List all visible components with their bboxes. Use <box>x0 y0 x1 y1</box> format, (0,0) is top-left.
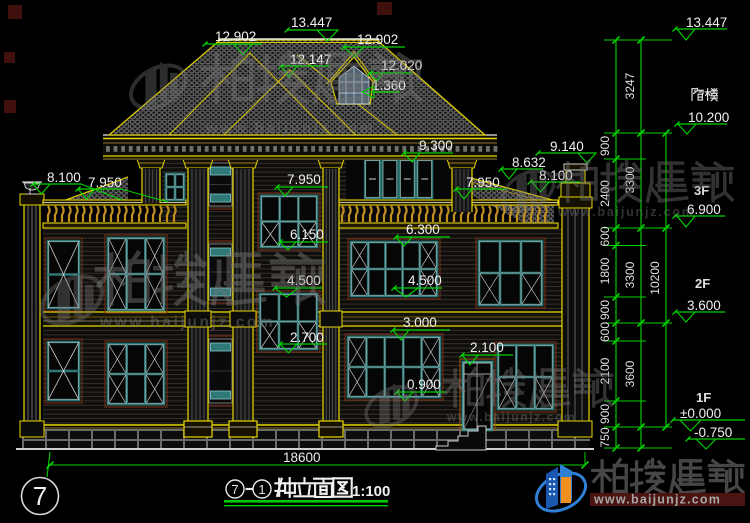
svg-text:6.150: 6.150 <box>290 227 324 242</box>
svg-text:3300: 3300 <box>623 261 637 288</box>
svg-text:www.baijunjz.com: www.baijunjz.com <box>205 120 375 137</box>
svg-text:12.902: 12.902 <box>215 29 256 44</box>
svg-text:-0.750: -0.750 <box>694 425 732 440</box>
svg-text:3.000: 3.000 <box>403 315 437 330</box>
svg-text:13.447: 13.447 <box>291 15 332 30</box>
svg-text:4.500: 4.500 <box>408 273 442 288</box>
svg-text:1:100: 1:100 <box>352 483 390 500</box>
svg-text:1: 1 <box>258 482 265 497</box>
svg-text:13.447: 13.447 <box>686 15 727 30</box>
svg-text:2.700: 2.700 <box>290 330 324 345</box>
svg-text:600: 600 <box>598 226 612 246</box>
svg-text:1F: 1F <box>696 390 711 405</box>
svg-text:www.baijunjz.com: www.baijunjz.com <box>99 314 275 331</box>
svg-text:12.902: 12.902 <box>357 32 398 47</box>
svg-text:7.950: 7.950 <box>287 172 321 187</box>
svg-text:600: 600 <box>598 322 612 342</box>
svg-text:750: 750 <box>598 427 612 447</box>
svg-text:7: 7 <box>231 482 238 497</box>
svg-text:7: 7 <box>33 481 47 511</box>
svg-text:2F: 2F <box>695 276 710 291</box>
svg-text:±0.000: ±0.000 <box>680 406 721 421</box>
svg-text:7.950: 7.950 <box>466 175 500 190</box>
svg-text:3247: 3247 <box>623 72 637 99</box>
svg-text:10200: 10200 <box>648 261 662 295</box>
svg-text:900: 900 <box>598 404 612 424</box>
svg-text:www.baijunjz.com: www.baijunjz.com <box>593 493 721 507</box>
svg-text:3600: 3600 <box>623 360 637 387</box>
svg-text:7.950: 7.950 <box>88 175 122 190</box>
svg-text:9.140: 9.140 <box>550 139 584 154</box>
svg-text:900: 900 <box>598 136 612 156</box>
svg-text:9.300: 9.300 <box>419 138 453 153</box>
svg-text:10.200: 10.200 <box>688 110 729 125</box>
svg-text:8.100: 8.100 <box>47 170 81 185</box>
svg-text:www.baijunjz.com: www.baijunjz.com <box>446 410 576 424</box>
svg-text:2400: 2400 <box>598 180 612 207</box>
svg-text:900: 900 <box>598 300 612 320</box>
svg-text:www.baijunjz.com: www.baijunjz.com <box>557 205 695 219</box>
svg-text:18600: 18600 <box>283 450 321 465</box>
svg-text:1800: 1800 <box>598 257 612 284</box>
svg-text:6.300: 6.300 <box>406 222 440 237</box>
svg-text:2.100: 2.100 <box>470 340 504 355</box>
svg-text:3.600: 3.600 <box>687 298 721 313</box>
